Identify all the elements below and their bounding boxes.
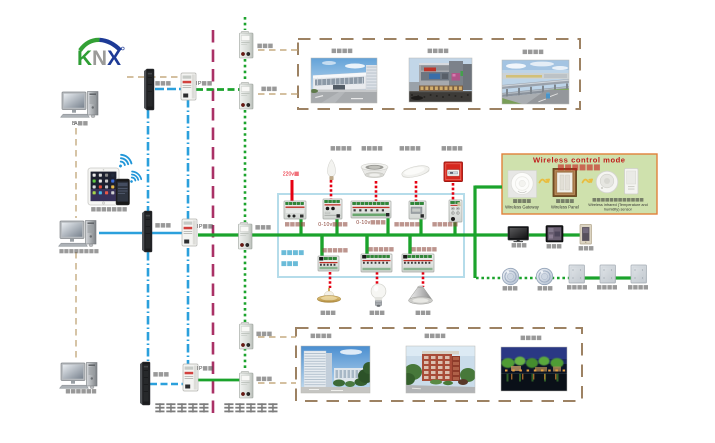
svg-text:IP: IP: [197, 366, 203, 372]
svg-text:BA: BA: [72, 121, 78, 127]
svg-text:0-10v: 0-10v: [318, 222, 332, 228]
svg-text:Wireless Panel: Wireless Panel: [551, 205, 579, 210]
svg-text:0-10v: 0-10v: [356, 220, 370, 226]
svg-text:220v: 220v: [283, 172, 295, 178]
svg-text:Wireless infrared (Temperature: Wireless infrared (Temperature and: [588, 203, 648, 207]
svg-text:IP: IP: [197, 224, 203, 230]
svg-text:IP: IP: [196, 81, 202, 87]
svg-text:humidity) sensor: humidity) sensor: [604, 208, 633, 212]
svg-text:Wireless Gateway: Wireless Gateway: [505, 205, 540, 210]
svg-text:Wireless control mode: Wireless control mode: [533, 156, 625, 165]
svg-text:KNX: KNX: [77, 47, 121, 70]
